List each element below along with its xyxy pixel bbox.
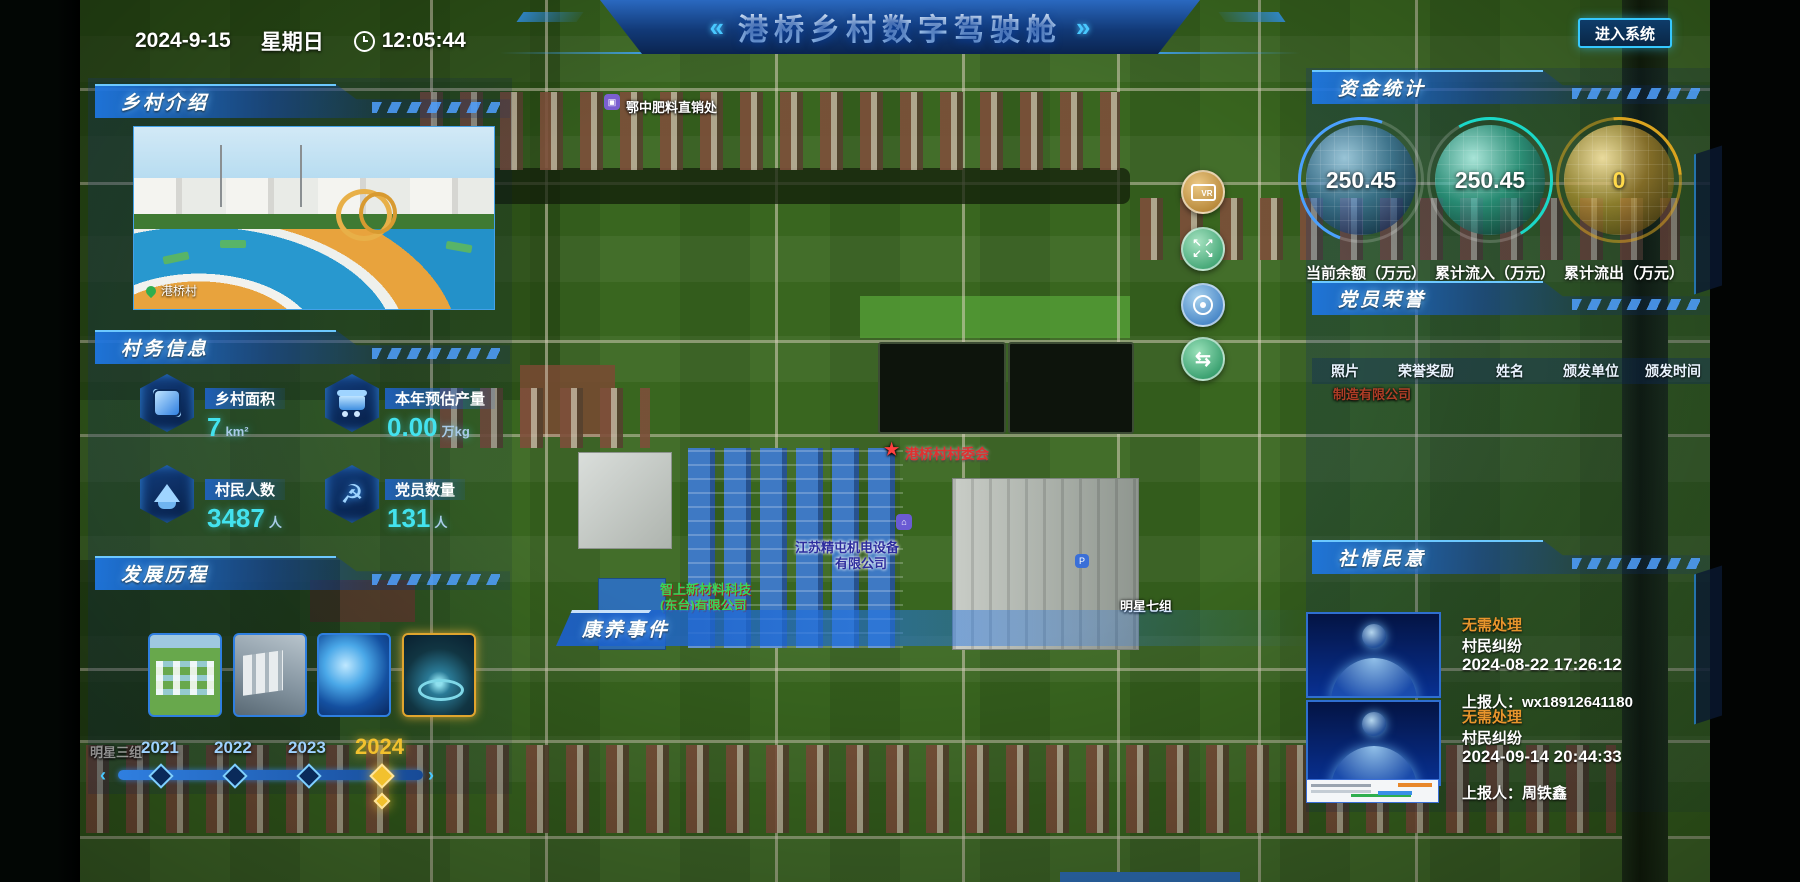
- date-text: 2024-9-15: [135, 29, 231, 53]
- stat-label-villagers: 村民人数: [205, 479, 285, 500]
- committee-star-icon[interactable]: ★: [884, 440, 899, 460]
- village-intro-title: 乡村介绍: [121, 88, 209, 115]
- opinion-item-avatar[interactable]: [1306, 612, 1441, 698]
- group3-map-label: 明星三组: [90, 742, 142, 761]
- history-thumb-2023[interactable]: [317, 633, 391, 717]
- col-time: 颁发时间: [1636, 361, 1710, 381]
- timeline-prev-arrow[interactable]: ‹: [100, 765, 106, 785]
- year-label-2021[interactable]: 2021: [141, 738, 179, 758]
- datetime-bar: 2024-9-15 星期日 12:05:44: [135, 26, 466, 56]
- inflow-label: 累计流入（万元）: [1435, 262, 1545, 283]
- party-honor-table-header: 照片 荣誉奖励 姓名 颁发单位 颁发时间: [1312, 358, 1710, 384]
- banner-accent-right: [1218, 12, 1285, 22]
- vr-panorama-icon: VR: [1191, 184, 1216, 201]
- outflow-gauge: 0: [1564, 125, 1674, 235]
- opinion-time: 2024-08-22 17:26:12: [1462, 655, 1622, 675]
- public-opinion-title: 社情民意: [1338, 544, 1426, 571]
- title-banner: « 港桥乡村数字驾驶舱 »: [600, 0, 1200, 54]
- title-chevron-left-icon: «: [710, 12, 724, 43]
- opinion-status: 无需处理: [1462, 706, 1522, 727]
- locate-target-icon: [1193, 295, 1213, 315]
- balance-label: 当前余额（万元）: [1306, 262, 1416, 283]
- year-label-2022[interactable]: 2022: [214, 738, 252, 758]
- company-map-pin[interactable]: ⌂: [896, 514, 912, 530]
- page-title: 港桥乡村数字驾驶舱: [738, 5, 1062, 49]
- balance-gauge: 250.45: [1306, 125, 1416, 235]
- health-event-title: 康养事件: [582, 615, 670, 642]
- history-thumb-2022[interactable]: [233, 633, 307, 717]
- village-photo[interactable]: 港桥村: [133, 126, 495, 310]
- year-label-2024[interactable]: 2024: [355, 734, 404, 760]
- year-label-2023[interactable]: 2023: [288, 738, 326, 758]
- opinion-time: 2024-09-14 20:44:33: [1462, 747, 1622, 767]
- history-thumb-2024[interactable]: [402, 633, 476, 717]
- photo-caption: 港桥村: [146, 282, 197, 299]
- development-title: 发展历程: [121, 560, 209, 587]
- col-name: 姓名: [1474, 361, 1546, 381]
- funds-title: 资金统计: [1338, 74, 1426, 101]
- parking-map-pin[interactable]: P: [1075, 554, 1089, 568]
- left-bezel: [0, 0, 80, 882]
- title-chevron-right-icon: »: [1076, 12, 1090, 43]
- col-photo: 照片: [1312, 361, 1378, 381]
- photo-bench: [220, 240, 246, 248]
- health-event-panel-header: 康养事件: [556, 610, 1316, 646]
- factory-bg-map-label: 制造有限公司: [1333, 384, 1411, 403]
- fertilizer-map-pin[interactable]: ▣: [604, 94, 620, 110]
- opinion-type: 村民纠纷: [1462, 727, 1522, 748]
- stat-label-output: 本年预估产量: [385, 388, 495, 409]
- swap-arrows-icon: ⇆: [1195, 348, 1211, 371]
- stat-label-party: 党员数量: [385, 479, 465, 500]
- enter-system-button[interactable]: 进入系统: [1578, 18, 1672, 48]
- weekday-text: 星期日: [261, 26, 324, 56]
- timeline-next-arrow[interactable]: ›: [428, 765, 434, 785]
- fertilizer-map-label: 鄂中肥料直销处: [626, 97, 717, 116]
- opinion-reporter: 上报人：周铁鑫: [1462, 782, 1567, 803]
- fullscreen-expand-icon: ↖↗↙↘: [1191, 238, 1215, 260]
- opinion-status: 无需处理: [1462, 614, 1522, 635]
- stat-value-output: 0.00万kg: [387, 412, 470, 443]
- party-honor-title: 党员荣誉: [1338, 285, 1426, 312]
- fullscreen-button[interactable]: ↖↗↙↘: [1181, 227, 1225, 271]
- stat-value-party: 131人: [387, 503, 447, 534]
- inflow-gauge: 250.45: [1435, 125, 1545, 235]
- right-bezel: [1710, 0, 1800, 882]
- stat-value-area: 7km²: [207, 412, 249, 443]
- stat-value-villagers: 3487人: [207, 503, 282, 534]
- right-bezel-accent: [1694, 145, 1722, 294]
- opinion-item-avatar[interactable]: [1306, 700, 1441, 786]
- right-bezel-accent: [1694, 565, 1722, 724]
- col-award: 荣誉奖励: [1378, 361, 1474, 381]
- clock-icon: [354, 31, 375, 52]
- photo-lamppost: [220, 145, 222, 207]
- banner-accent-left: [516, 12, 583, 22]
- opinion-type: 村民纠纷: [1462, 635, 1522, 656]
- vr-panorama-button[interactable]: VR: [1181, 170, 1225, 214]
- locate-button[interactable]: [1181, 283, 1225, 327]
- time-text: 12:05:44: [382, 29, 466, 53]
- photo-arch: [336, 189, 392, 241]
- history-thumb-2021[interactable]: [148, 633, 222, 717]
- photo-lamppost: [300, 145, 302, 207]
- company1-label-line2: 有限公司: [835, 553, 887, 572]
- photo-caption-text: 港桥村: [161, 282, 197, 299]
- village-info-title: 村务信息: [121, 334, 209, 361]
- stat-label-area: 乡村面积: [205, 388, 285, 409]
- col-issuer: 颁发单位: [1546, 361, 1636, 381]
- committee-map-label: 港桥村村委会: [905, 444, 989, 464]
- opinion-item-thumbnail[interactable]: [1306, 779, 1439, 803]
- outflow-label: 累计流出（万元）: [1564, 262, 1674, 283]
- layer-switch-button[interactable]: ⇆: [1181, 337, 1225, 381]
- location-pin-icon: [144, 283, 158, 297]
